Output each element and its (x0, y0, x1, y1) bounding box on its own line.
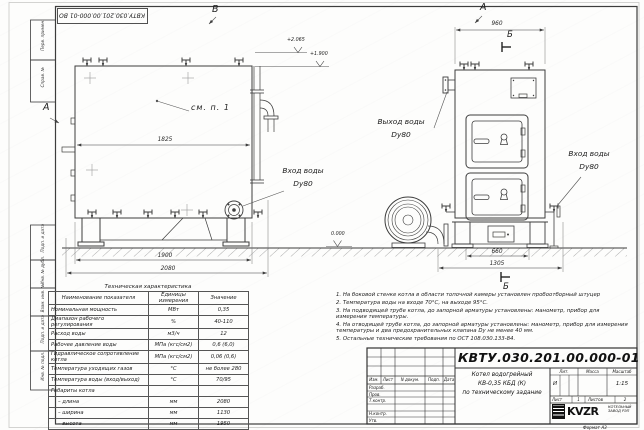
row-value: 1950 (199, 419, 249, 430)
dim-2080: 2080 (143, 266, 193, 272)
row-unit: °С (149, 364, 199, 375)
elevation-zero: 0.000 (331, 232, 345, 237)
scale-value: 1:15 (607, 381, 637, 387)
row-unit: мм (149, 419, 199, 430)
row-name: Габариты котла (49, 386, 149, 397)
lit-value: И (550, 381, 560, 387)
product-title-line1: Котел водогрейный (456, 372, 548, 378)
row-value: 2080 (199, 397, 249, 408)
sheets-label: Листов (588, 397, 603, 402)
row-unit: м3/ч (149, 329, 199, 340)
row-unit: МПа (кгс/см2) (149, 340, 199, 351)
row-unit: % (149, 316, 199, 329)
margin-label-sprav-no: Справ. № (41, 57, 45, 97)
kvzr-logo-icon (552, 404, 565, 419)
row-name: Температура уходящих газов (49, 364, 149, 375)
product-title-line2: КВ-0,35 КБД (К) (456, 381, 548, 387)
elevation-1900: +1.900 (310, 52, 328, 57)
row-nkontr: Н.контр. (369, 411, 387, 416)
row-value (199, 386, 249, 397)
format-label: Формат А3 (583, 425, 607, 430)
dim-660: 660 (475, 249, 519, 255)
row-unit: МПа (кгс/см2) (149, 351, 199, 364)
table-row: Рабочее давление водыМПа (кгс/см2)0,6 (6… (49, 340, 249, 351)
kvzr-logo: KVZR (552, 404, 598, 419)
row-name: Гидравлическое сопротивление котла (49, 351, 149, 364)
row-name: Рабочее давление воды (49, 340, 149, 351)
sheet-label: Лист (552, 397, 562, 402)
row-value: не более 280 (199, 364, 249, 375)
row-value: 0,35 (199, 305, 249, 316)
row-name: Температура воды (вход/выход) (49, 375, 149, 386)
header-izm: Изм. (367, 377, 381, 382)
margin-label-podp-data-2: Подп. и дата (41, 309, 45, 349)
table-row: – длинамм2080 (49, 397, 249, 408)
outlet-water-label: Выход воды (366, 118, 436, 126)
inlet-water-dy80-right: Dy80 (558, 163, 620, 171)
outlet-water-dy80: Dy80 (366, 131, 436, 139)
sheet-value: 1 (572, 397, 585, 402)
table-row: – высотамм1950 (49, 419, 249, 430)
margin-label-inv-podl: Инв. № подл. (41, 346, 45, 386)
note-3: 3. На подводящей трубе котла, до запорно… (336, 308, 628, 321)
product-title-line3: по техническому задание (456, 390, 548, 396)
inlet-water-label-left: Вход воды (276, 167, 330, 175)
tech-table-block: Техническая характеристика Наименование … (48, 284, 248, 430)
company-line2: ЗАВОД РЭП (608, 409, 631, 413)
doc-number: КВТУ.030.201.00.000-01 ВО (458, 350, 634, 365)
dim-1305: 1305 (475, 261, 519, 267)
tech-table-title: Техническая характеристика (48, 284, 248, 290)
tech-col-units: Единицы измерения (149, 292, 199, 305)
row-name: Номинальная мощность (49, 305, 149, 316)
dim-1900: 1900 (140, 253, 190, 259)
header-podp: Подп. (425, 377, 443, 382)
table-row: – ширинамм1130 (49, 408, 249, 419)
table-row: Диапазон рабочего регулирования%40-110 (49, 316, 249, 329)
scale-label: Масштаб (607, 369, 637, 374)
table-row: Расход водым3/ч12 (49, 329, 249, 340)
view-marker-b: В (212, 5, 219, 15)
row-name: Диапазон рабочего регулирования (49, 316, 149, 329)
note-5: 5. Остальные технические требования по О… (336, 336, 628, 342)
note-1: 1. На боковой стенке котла в области топ… (336, 292, 628, 298)
header-list: Лист (381, 377, 395, 382)
top-stamp-doc-number: КВТУ.030.201.00.000-01 ВО (57, 11, 147, 17)
see-item-annotation: см. п. 1 (191, 104, 230, 112)
row-name: Расход воды (49, 329, 149, 340)
section-marker-b-top: Б (507, 31, 513, 40)
tech-col-name: Наименование показателя (49, 292, 149, 305)
table-row: Температура воды (вход/выход)°С70/95 (49, 375, 249, 386)
company-name: КОТЕЛЬНЫЙ ЗАВОД РЭП (608, 405, 631, 414)
table-row: Гидравлическое сопротивление котлаМПа (к… (49, 351, 249, 364)
row-tkontr: Т.контр. (369, 398, 386, 403)
row-value: 1130 (199, 408, 249, 419)
row-prov: Пров. (369, 392, 381, 397)
row-value: 12 (199, 329, 249, 340)
mass-label: Масса (578, 369, 607, 374)
sheets-value: 2 (615, 397, 635, 402)
row-value: 0,06 (0,6) (199, 351, 249, 364)
note-2: 2. Температура воды на входе 70°С, на вы… (336, 300, 628, 306)
lit-label: Лит. (550, 369, 578, 374)
dim-1825: 1825 (140, 137, 190, 143)
dim-960: 960 (475, 21, 519, 27)
row-name: – ширина (49, 408, 149, 419)
margin-label-perv-primen: Перв. примен. (41, 15, 45, 55)
row-name: – высота (49, 419, 149, 430)
row-unit: мм (149, 397, 199, 408)
row-unit: МВт (149, 305, 199, 316)
tech-table: Наименование показателя Единицы измерени… (48, 291, 249, 430)
view-marker-a-left: А (43, 103, 50, 113)
row-unit: °С (149, 375, 199, 386)
inlet-water-dy80-left: Dy80 (276, 180, 330, 188)
inlet-water-label-right: Вход воды (558, 150, 620, 158)
table-row: Номинальная мощностьМВт0,35 (49, 305, 249, 316)
row-value: 0,6 (6,0) (199, 340, 249, 351)
row-value: 70/95 (199, 375, 249, 386)
technical-notes: 1. На боковой стенке котла в области топ… (336, 292, 628, 344)
row-utv: Утв. (369, 418, 377, 423)
row-unit (149, 386, 199, 397)
row-unit: мм (149, 408, 199, 419)
kvzr-logo-text: KVZR (567, 405, 598, 418)
row-razrab: Разраб. (369, 385, 385, 390)
drawing-sheet: КВТУ.030.201.00.000-01 ВО Перв. примен. … (0, 0, 644, 430)
note-4: 4. На отводящей трубе котла, до запорной… (336, 322, 628, 335)
elevation-2065: +2.065 (287, 38, 305, 43)
header-ndoc: N докум. (395, 377, 425, 382)
table-row: Габариты котла (49, 386, 249, 397)
row-name: – длина (49, 397, 149, 408)
table-row: Температура уходящих газов°Сне более 280 (49, 364, 249, 375)
section-marker-b-bottom: Б (503, 283, 509, 292)
row-value: 40-110 (199, 316, 249, 329)
header-data: Дата (443, 377, 455, 382)
view-marker-a-right: А (480, 3, 487, 13)
tech-col-value: Значение (199, 292, 249, 305)
